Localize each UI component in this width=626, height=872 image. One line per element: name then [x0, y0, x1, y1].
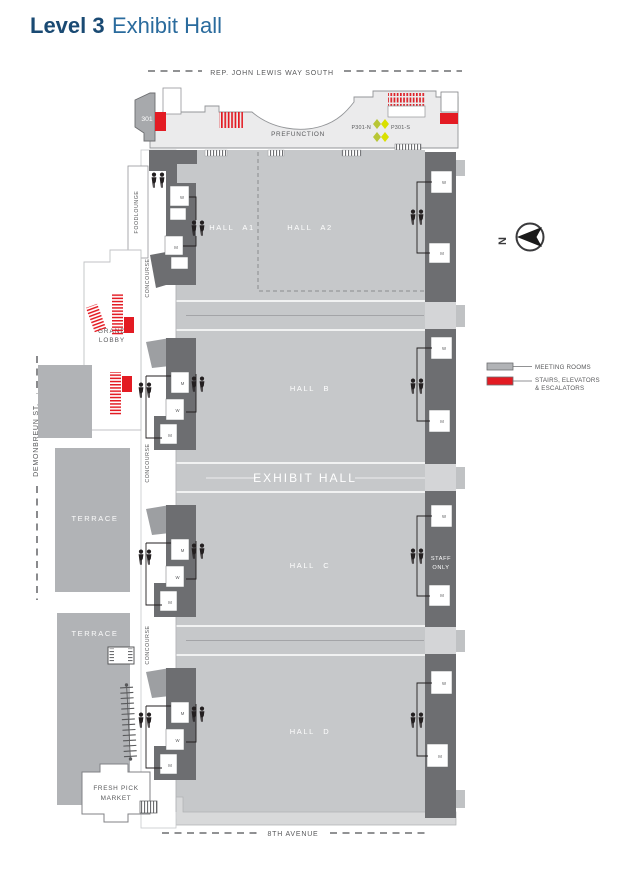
- restroom-men-label: M: [438, 754, 442, 759]
- hall-d-label: HALL D: [290, 727, 331, 736]
- aisle-opening: [425, 464, 456, 491]
- prefunction-label: PREFUNCTION: [271, 131, 325, 138]
- legend-stairs-swatch: [487, 377, 513, 385]
- hall-b-label: HALL B: [290, 384, 330, 393]
- legend-meeting-rooms-swatch: [487, 363, 513, 370]
- p301n-label: P301-N: [352, 125, 371, 131]
- concourse-label: CONCOURSE: [145, 443, 151, 482]
- terrace-upper-label: TERRACE: [71, 514, 118, 523]
- compass: N: [497, 224, 544, 251]
- exhibit-hall-label: EXHIBIT HALL: [253, 471, 357, 485]
- grand-lobby: GRAND LOBBY: [84, 250, 141, 430]
- elevator-hatch-icon: [110, 649, 115, 663]
- market-label-1: FRESH PICK: [93, 785, 138, 792]
- staff-only-label-2: ONLY: [432, 565, 449, 571]
- legend-meeting-rooms-label: MEETING ROOMS: [535, 364, 591, 371]
- title-name: Exhibit Hall: [112, 13, 222, 38]
- legend-stairs-label-2: & ESCALATORS: [535, 385, 584, 392]
- compass-north-label: N: [497, 237, 509, 245]
- dock-stub: [456, 160, 465, 176]
- staff-only-label-1: STAFF: [431, 556, 451, 562]
- stairwell-room: [163, 88, 181, 114]
- grand-lobby-label-2: LOBBY: [99, 337, 125, 344]
- legend: MEETING ROOMS STAIRS, ELEVATORS & ESCALA…: [487, 363, 600, 392]
- dock-stub: [456, 790, 465, 808]
- page-title: Level 3 Exhibit Hall: [30, 13, 222, 38]
- legend-stairs-label-1: STAIRS, ELEVATORS: [535, 377, 600, 384]
- aisle-opening: [425, 627, 456, 654]
- concourse-label: CONCOURSE: [145, 625, 151, 664]
- escalator-hatch-icon: [112, 293, 123, 335]
- door-comb-icon: [342, 150, 361, 156]
- elevator-hatch-icon: [128, 649, 133, 663]
- aisle-opening: [425, 302, 456, 329]
- door-comb-icon: [268, 150, 284, 156]
- floor-plan-map: M W M Level 3 Exhibit Hall REP. JOHN LEW…: [0, 0, 626, 872]
- stairwell-room: [441, 92, 458, 112]
- restroom-men-label: M: [440, 593, 444, 598]
- escalator-bank-icon: [388, 93, 425, 106]
- dock-stub: [456, 630, 465, 652]
- dock-stub: [456, 467, 465, 489]
- concourse-label: CONCOURSE: [145, 258, 151, 297]
- room-301-label: 301: [141, 116, 153, 123]
- stairs-block-icon: [155, 112, 166, 131]
- escalator-hatch-icon: [110, 372, 121, 416]
- street-top-label: REP. JOHN LEWIS WAY SOUTH: [210, 70, 334, 77]
- restroom-men-label: M: [174, 245, 178, 250]
- escalator-comb-icon: [140, 801, 157, 813]
- door-comb-icon: [395, 144, 421, 150]
- floor-plan-page: M W M Level 3 Exhibit Hall REP. JOHN LEW…: [0, 0, 626, 872]
- prefunction-area: 301 PREFUNCTION P301-N P301-S: [135, 88, 458, 150]
- restroom-men-label: M: [440, 251, 444, 256]
- dock-stub: [456, 305, 465, 327]
- hall-c-label: HALL C: [290, 561, 331, 570]
- left-blocks: TERRACE TERRACE FRESH PICK MARKET: [38, 365, 157, 822]
- restroom-men-label: M: [440, 419, 444, 424]
- hall-a1-label: HALL A1: [209, 223, 255, 232]
- stairs-block-icon: [440, 113, 458, 124]
- street-bottom-label: 8TH AVENUE: [267, 831, 318, 838]
- p301s-label: P301-S: [391, 125, 410, 131]
- building-block: [38, 365, 92, 438]
- street-top: REP. JOHN LEWIS WAY SOUTH: [148, 70, 462, 77]
- door-comb-icon: [205, 150, 227, 156]
- escalator-hatch-icon: [219, 112, 243, 128]
- foodlounge-label: FOODLOUNGE: [134, 191, 140, 234]
- escalator-landing: [388, 106, 425, 117]
- title-level: Level 3: [30, 13, 105, 38]
- street-bottom: 8TH AVENUE: [162, 831, 428, 838]
- stairs-block-icon: [124, 317, 134, 333]
- terrace-lower-label: TERRACE: [71, 629, 118, 638]
- stairs-block-icon: [122, 376, 132, 392]
- hall-a2-label: HALL A2: [287, 223, 333, 232]
- market-label-2: MARKET: [101, 795, 132, 802]
- exhibit-halls: HALL A1 HALL A2 HALL B HALL C HALL D EXH…: [158, 150, 456, 825]
